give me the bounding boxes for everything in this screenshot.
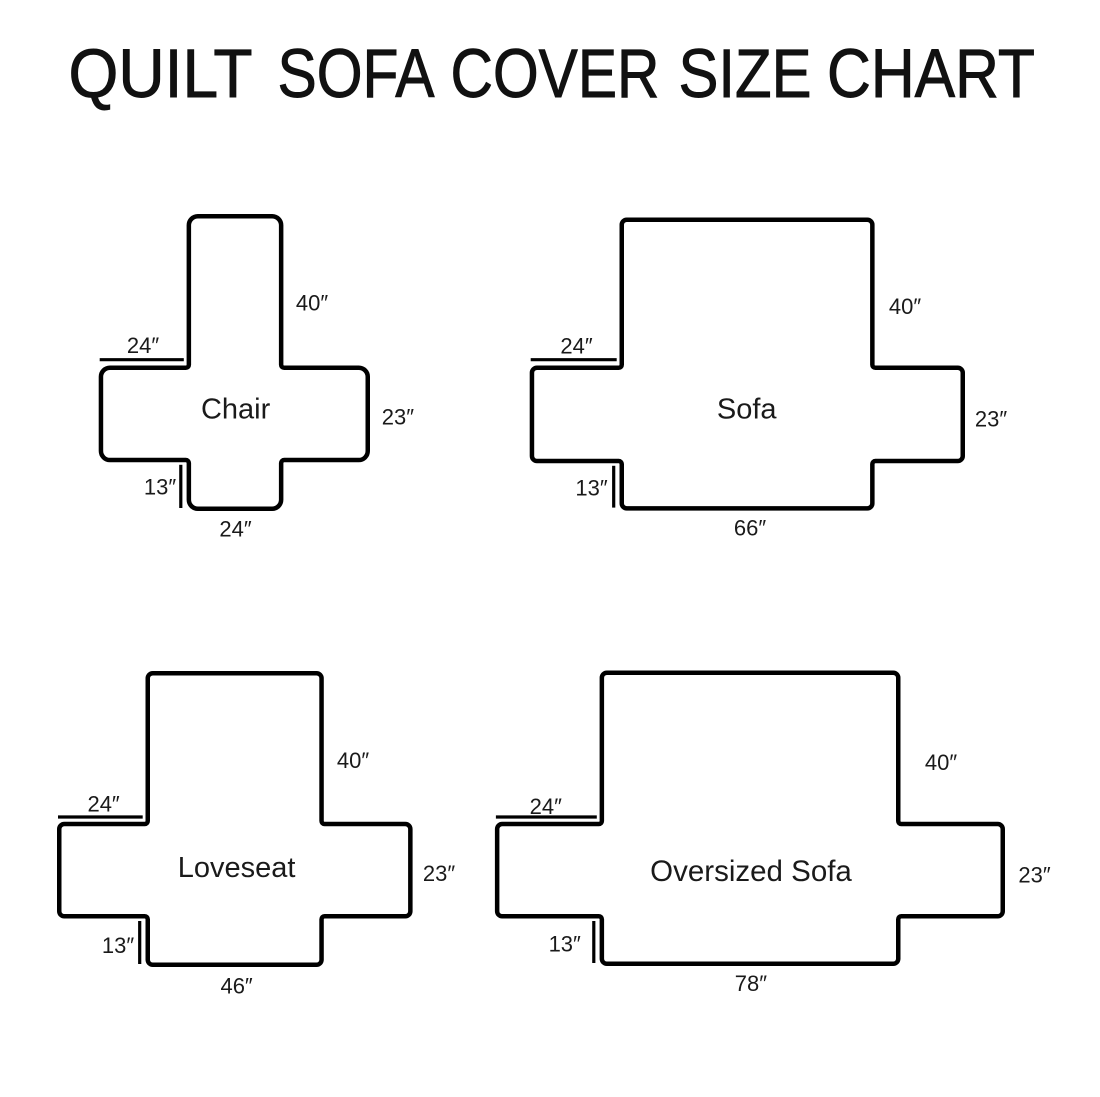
svg-text:13″: 13″ <box>575 475 607 500</box>
svg-text:24″: 24″ <box>127 333 159 358</box>
svg-text:78″: 78″ <box>735 971 767 996</box>
svg-text:23″: 23″ <box>382 405 414 430</box>
svg-text:Sofa: Sofa <box>717 394 778 426</box>
svg-text:Chair: Chair <box>201 394 271 426</box>
svg-text:13″: 13″ <box>549 932 581 957</box>
svg-text:40″: 40″ <box>889 294 921 319</box>
svg-text:COVER: COVER <box>451 35 660 112</box>
svg-text:13″: 13″ <box>144 474 176 499</box>
svg-text:24″: 24″ <box>219 516 251 541</box>
svg-text:SIZE: SIZE <box>679 35 812 112</box>
svg-text:24″: 24″ <box>87 792 119 817</box>
svg-text:46″: 46″ <box>220 974 252 999</box>
svg-text:23″: 23″ <box>1018 862 1050 887</box>
svg-text:Oversized Sofa: Oversized Sofa <box>650 855 852 888</box>
svg-text:23″: 23″ <box>423 861 455 886</box>
svg-text:24″: 24″ <box>530 794 562 819</box>
svg-text:SOFA: SOFA <box>278 35 435 112</box>
svg-text:13″: 13″ <box>102 933 134 958</box>
svg-text:24″: 24″ <box>560 334 592 359</box>
svg-text:QUILT: QUILT <box>69 35 253 112</box>
svg-text:CHART: CHART <box>827 35 1035 112</box>
svg-text:40″: 40″ <box>337 748 369 773</box>
svg-text:40″: 40″ <box>296 290 328 315</box>
svg-text:Loveseat: Loveseat <box>178 852 296 884</box>
svg-text:66″: 66″ <box>734 516 766 541</box>
svg-text:23″: 23″ <box>975 406 1007 431</box>
svg-text:40″: 40″ <box>925 750 957 775</box>
